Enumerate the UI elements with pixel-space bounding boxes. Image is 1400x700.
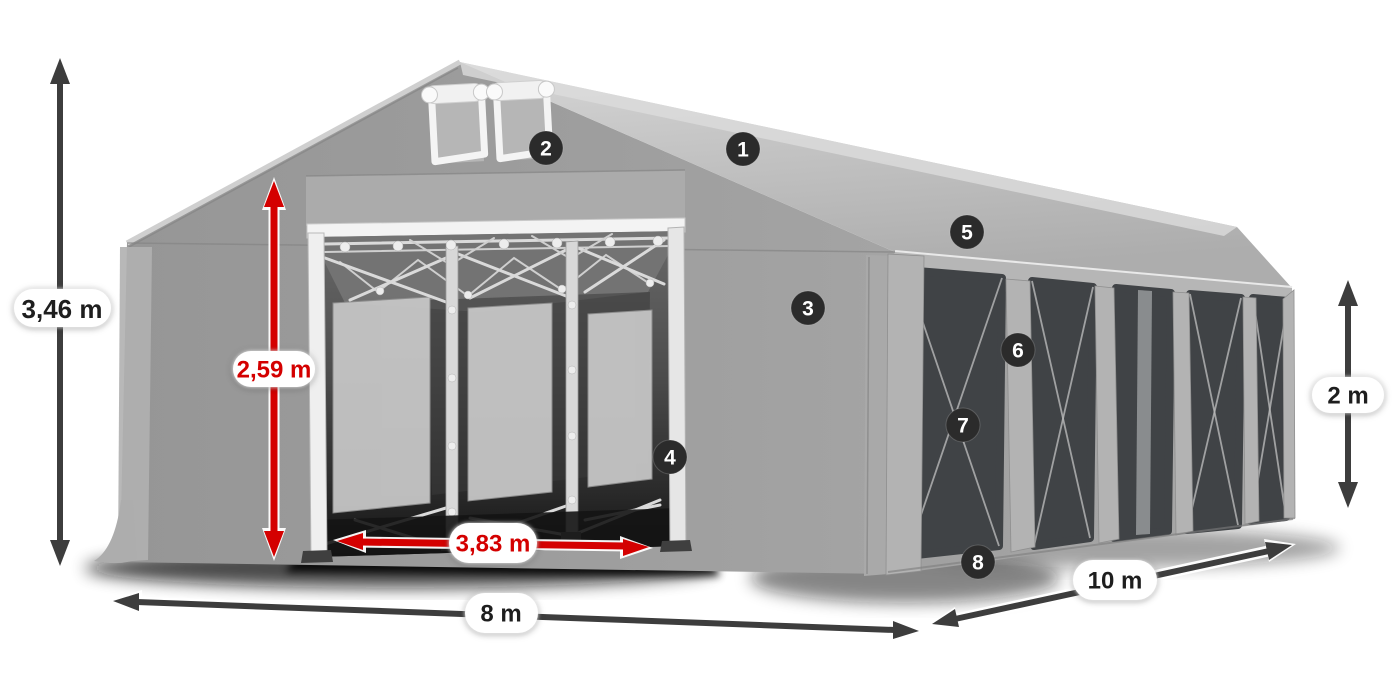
side-window-4: [1187, 294, 1241, 530]
svg-text:5: 5: [961, 222, 973, 245]
vent-window-left: [421, 83, 493, 164]
interior-post: [446, 246, 458, 549]
door-frame-foot-right: [660, 540, 692, 552]
diagram-canvas: 1 2 3 4 5 6 7 8 3,46 m: [0, 0, 1400, 700]
dim-side-height-label: 2 m: [1327, 383, 1368, 410]
badge-3[interactable]: 3: [791, 291, 825, 325]
dim-entrance-width-label: 3,83 m: [456, 531, 531, 558]
door-frame-left: [308, 233, 327, 561]
door-frame-right: [668, 227, 686, 550]
front-left-skirt-curl: [94, 500, 137, 563]
door-top-band: [306, 170, 685, 226]
badge-2[interactable]: 2: [529, 131, 563, 165]
svg-text:6: 6: [1012, 340, 1024, 363]
door-opening-interior: [300, 220, 695, 565]
badge-5[interactable]: 5: [950, 215, 984, 249]
svg-text:7: 7: [957, 415, 969, 438]
dim-side-length-label: 10 m: [1088, 568, 1143, 595]
badge-8[interactable]: 8: [961, 545, 995, 579]
side-window-3-sliding-door: [1114, 288, 1171, 538]
badge-1[interactable]: 1: [726, 132, 760, 166]
dim-total-height: 3,46 m: [14, 54, 111, 570]
interior-post: [566, 241, 578, 539]
dim-gable-width-label: 8 m: [480, 601, 521, 628]
side-window-2: [1032, 281, 1093, 546]
svg-text:8: 8: [972, 552, 984, 575]
svg-text:4: 4: [664, 447, 676, 470]
interior-wall-panels: [333, 297, 652, 513]
svg-text:1: 1: [737, 139, 749, 162]
dim-entrance-height-label: 2,59 m: [237, 357, 312, 384]
dim-total-height-label: 3,46 m: [22, 294, 103, 324]
svg-text:2: 2: [540, 138, 552, 161]
badge-4[interactable]: 4: [653, 440, 687, 474]
side-corner-pillar: [886, 254, 924, 575]
door-frame-foot-left: [301, 550, 333, 563]
badge-6[interactable]: 6: [1001, 333, 1035, 367]
tent-dimension-diagram: 1 2 3 4 5 6 7 8 3,46 m: [0, 0, 1400, 700]
dim-side-height: 2 m: [1312, 276, 1384, 512]
dim-gable-width: 8 m: [109, 590, 923, 642]
badge-7[interactable]: 7: [946, 408, 980, 442]
svg-text:3: 3: [802, 298, 814, 321]
